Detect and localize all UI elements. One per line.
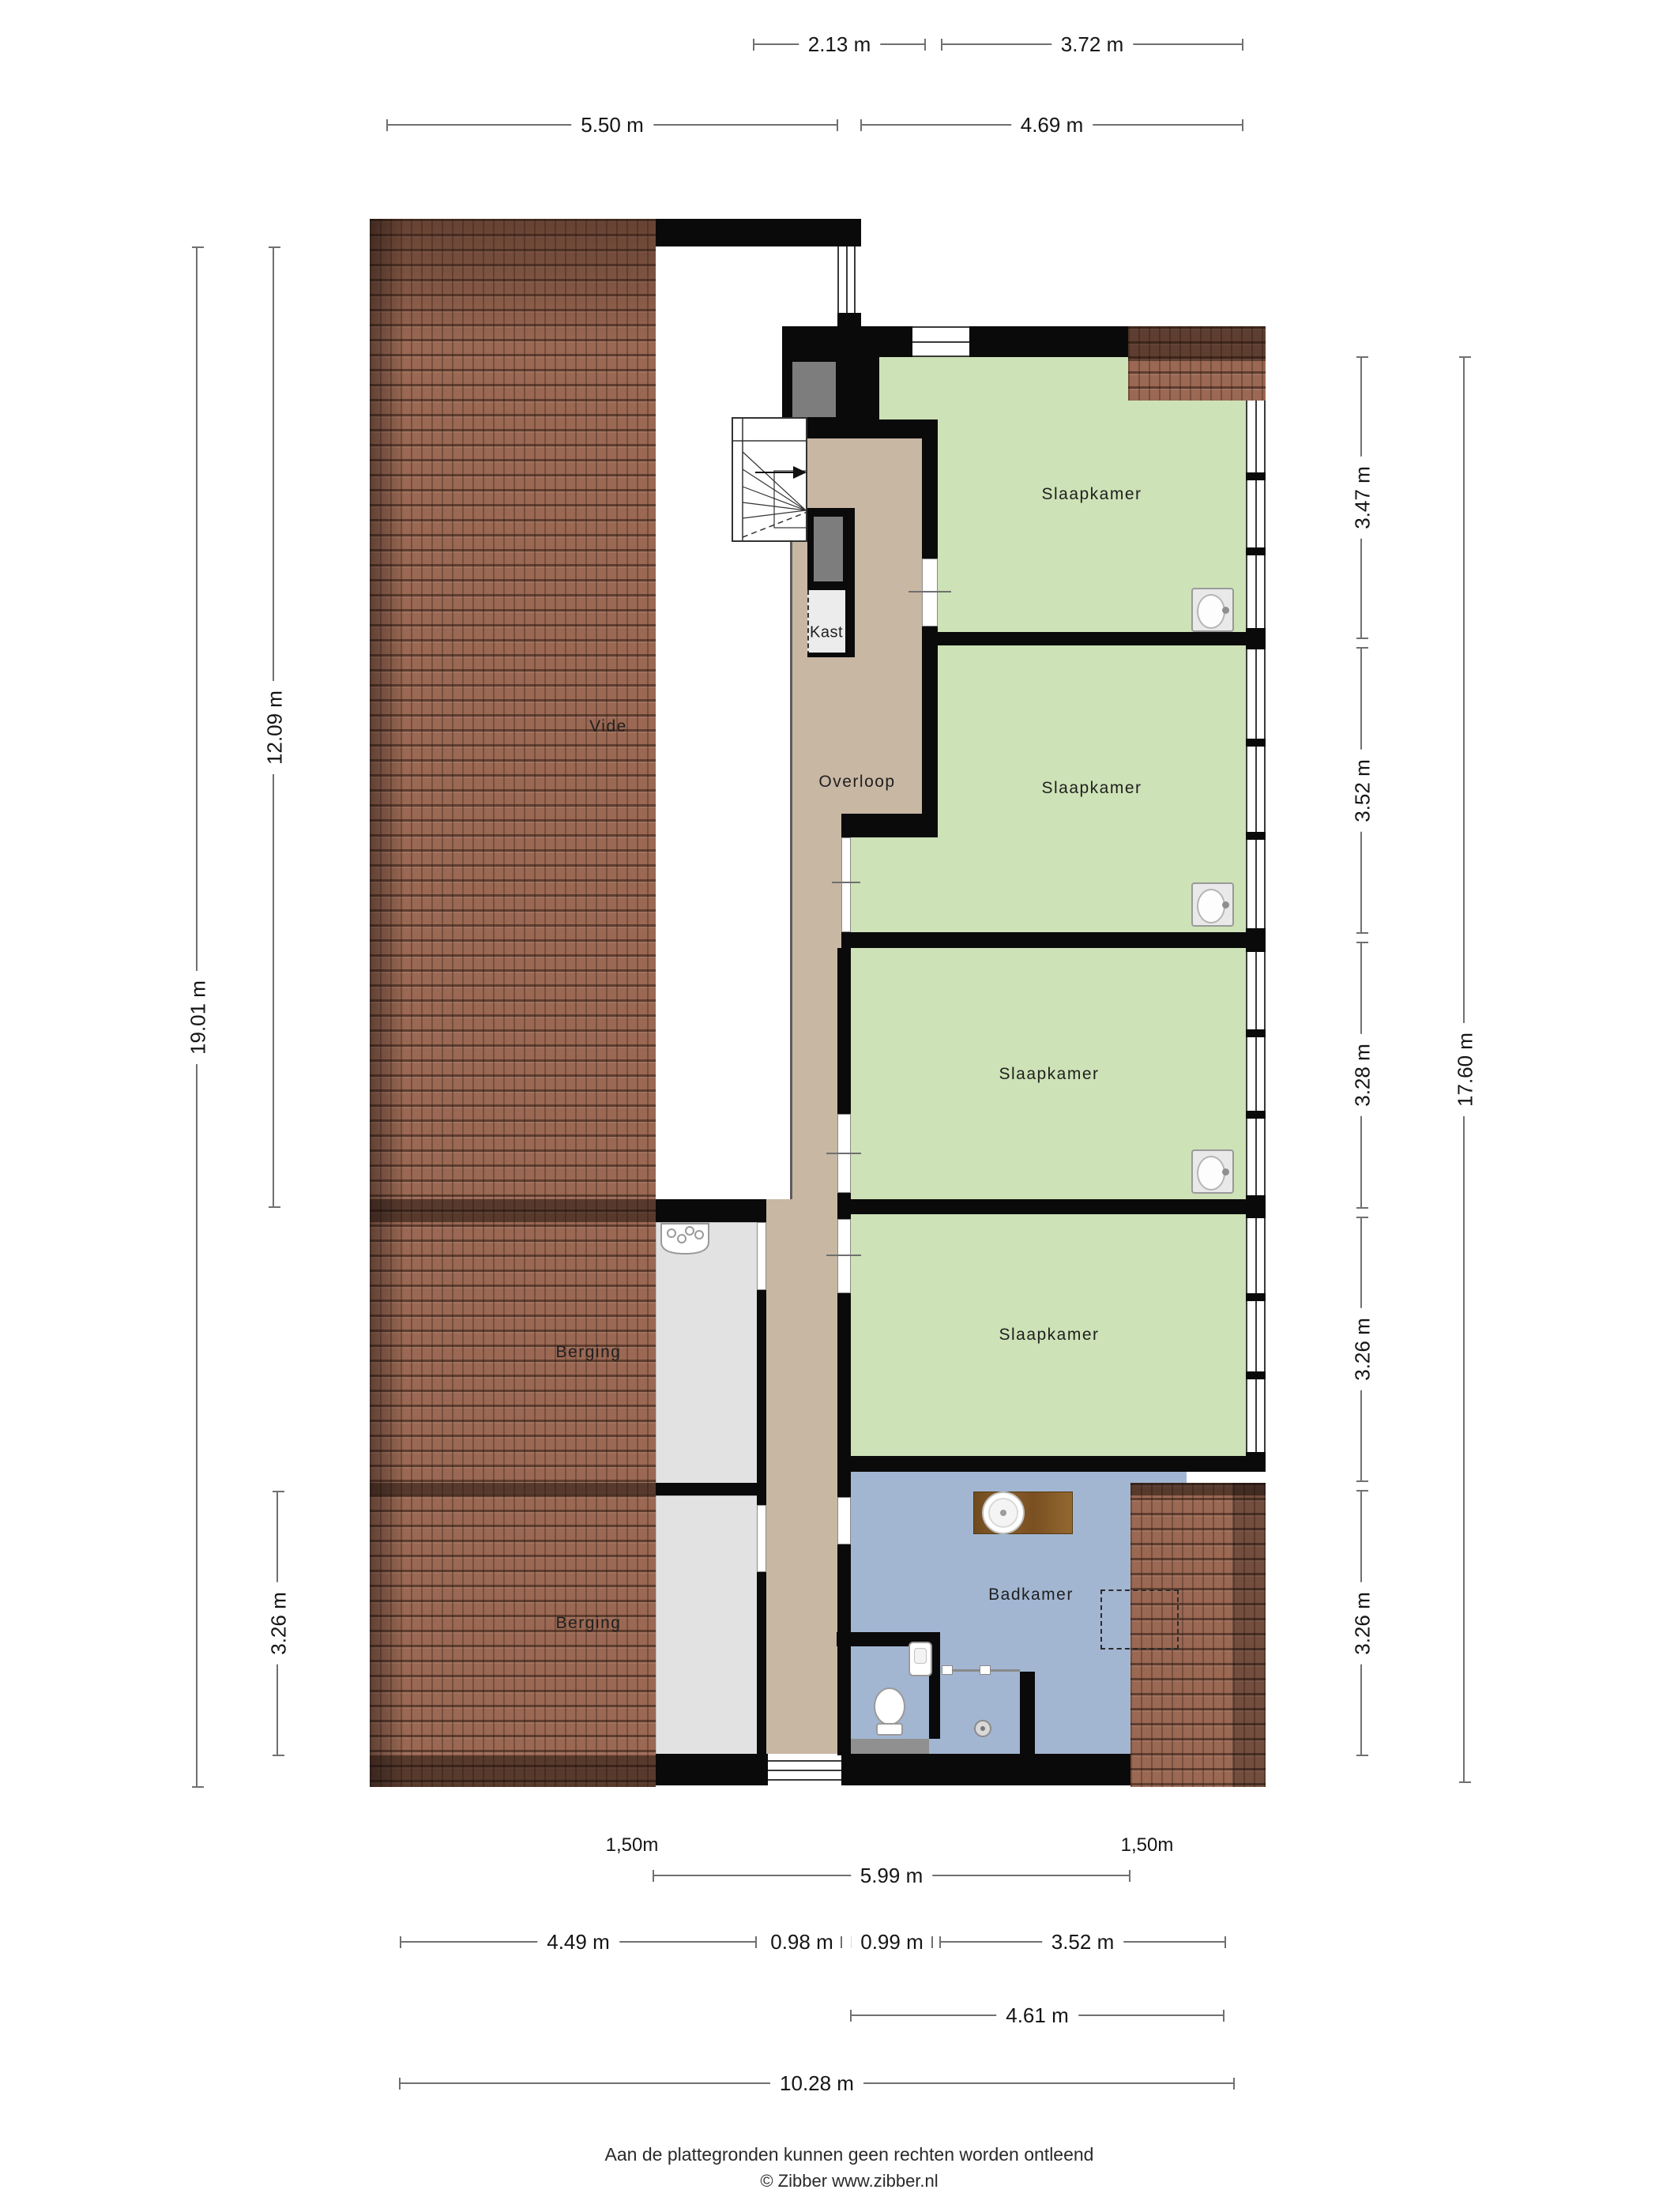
- dim-label: 3.26 m: [1351, 1308, 1375, 1390]
- headroom-label-right: 1,50m: [1121, 1834, 1174, 1856]
- landing-floor-mid: [792, 814, 841, 1199]
- room-label-vide: Vide: [589, 717, 627, 736]
- wall-east-cap-2: [1246, 928, 1266, 952]
- dim-label: 17.60 m: [1454, 1023, 1478, 1116]
- wall-bath-left-a: [837, 1472, 851, 1497]
- window-mullion: [1246, 1293, 1266, 1301]
- window-mullion: [1246, 1111, 1266, 1119]
- bedroom-4-door-swing: [826, 1255, 861, 1256]
- bedroom-1-door-swing: [908, 591, 951, 592]
- window-mullion: [1246, 472, 1266, 480]
- south-window: [768, 1760, 841, 1781]
- void-edge-line: [790, 542, 792, 1199]
- headroom-label-left: 1,50m: [606, 1834, 659, 1856]
- wall-divider-bed2-bed3: [841, 932, 1266, 948]
- dim-label: 2.13 m: [799, 32, 881, 57]
- footer-disclaimer: Aan de plattegronden kunnen geen rechten…: [605, 2144, 1094, 2165]
- storage-1-floor: [656, 1222, 758, 1484]
- wall-divider-bed4-bath: [837, 1456, 1266, 1472]
- dim-label: 3.72 m: [1051, 32, 1134, 57]
- dim-bottom-0-98: 0.98 m: [762, 1941, 841, 1943]
- dim-top-3-72: 3.72 m: [942, 43, 1243, 45]
- wall-storage-divider: [654, 1483, 766, 1495]
- dim-label: 4.49 m: [537, 1930, 619, 1954]
- dim-right-3-26-a: 3.26 m: [1360, 1217, 1362, 1481]
- wall-closet-right: [845, 508, 855, 656]
- dim-label: 0.98 m: [761, 1930, 843, 1954]
- bedroom-4-door: [837, 1219, 851, 1293]
- dim-left-3-26: 3.26 m: [276, 1492, 278, 1755]
- shower-area-outline: [1100, 1589, 1179, 1650]
- dim-bottom-10-28: 10.28 m: [400, 2082, 1234, 2084]
- dim-bottom-5-99: 5.99 m: [653, 1875, 1130, 1876]
- wall-shower-partition: [1020, 1672, 1035, 1755]
- shower-screen-cap: [980, 1665, 991, 1675]
- wall-south-right: [841, 1754, 1130, 1785]
- dim-left-12-09: 12.09 m: [273, 247, 274, 1207]
- wall-divider-bed1-bed2: [922, 632, 1266, 645]
- wall-bed1-left-upper: [863, 326, 879, 419]
- bedroom-1-door: [922, 559, 938, 626]
- room-label-badkamer: Badkamer: [988, 1586, 1074, 1604]
- wall-east-cap-1: [1246, 628, 1266, 649]
- room-label-slaapkamer-1: Slaapkamer: [1041, 485, 1142, 504]
- closet-floor: [807, 590, 847, 656]
- dim-bottom-4-61: 4.61 m: [851, 2014, 1224, 2016]
- room-label-slaapkamer-3: Slaapkamer: [999, 1065, 1099, 1084]
- wall-hall-left-a: [757, 1290, 766, 1505]
- dim-label: 12.09 m: [263, 681, 288, 774]
- dormer-window: [837, 246, 856, 313]
- toilet: [872, 1687, 907, 1736]
- dim-right-17-60: 17.60 m: [1463, 357, 1465, 1782]
- room-label-berging-2: Berging: [556, 1614, 622, 1633]
- landing-floor-lower: [766, 1199, 841, 1754]
- dim-bottom-4-49: 4.49 m: [401, 1941, 756, 1943]
- chimney-duct-1: [792, 362, 836, 417]
- window-mullion: [1246, 739, 1266, 747]
- dim-top-2-13: 2.13 m: [754, 43, 925, 45]
- dim-label: 3.26 m: [1351, 1582, 1375, 1665]
- wall-south-left: [654, 1754, 768, 1785]
- shower-head: [974, 1720, 991, 1737]
- bedroom-4-window: [1246, 1218, 1266, 1452]
- room-label-slaapkamer-4: Slaapkamer: [999, 1326, 1099, 1345]
- dim-label: 4.61 m: [996, 2003, 1078, 2028]
- wall-bed2-left: [922, 645, 938, 814]
- dim-right-3-26-b: 3.26 m: [1360, 1491, 1362, 1755]
- dim-label: 3.26 m: [267, 1582, 292, 1665]
- storage-2-door: [757, 1505, 766, 1572]
- dim-label: 3.52 m: [1351, 750, 1375, 832]
- dim-label: 0.99 m: [851, 1930, 933, 1954]
- wc-hand-basin: [908, 1642, 932, 1676]
- wall-closet-bottom: [807, 653, 855, 657]
- wall-east-cap-4: [1246, 1452, 1266, 1472]
- dim-top-4-69: 4.69 m: [861, 124, 1243, 126]
- wall-divider-bed3-bed4: [837, 1199, 1266, 1214]
- shower-screen-cap: [942, 1665, 953, 1675]
- window-mullion: [1246, 1371, 1266, 1379]
- wall-dormer-top: [653, 219, 861, 246]
- dim-label: 3.47 m: [1351, 457, 1375, 539]
- storage-sink: [660, 1223, 709, 1255]
- dim-label: 19.01 m: [186, 971, 211, 1064]
- bedroom-2-door: [841, 837, 851, 932]
- bedroom-1-sink: [1191, 588, 1234, 632]
- roof-top-right: [1128, 326, 1266, 401]
- bathroom-round-sink: [982, 1492, 1025, 1534]
- dim-right-3-47: 3.47 m: [1360, 357, 1362, 638]
- dim-label: 5.99 m: [851, 1864, 933, 1888]
- window-mullion: [1246, 547, 1266, 555]
- dim-label: 3.52 m: [1042, 1930, 1124, 1954]
- bedroom-2-floor-ext: [851, 837, 938, 932]
- wall-bed3-left-a: [837, 948, 851, 1114]
- window-mullion: [1246, 1029, 1266, 1037]
- wall-bath-left-b: [837, 1544, 851, 1755]
- chimney-duct-2: [814, 517, 843, 581]
- bedroom-2-door-swing: [832, 882, 860, 883]
- dim-top-5-50: 5.50 m: [387, 124, 837, 126]
- room-label-berging-1: Berging: [556, 1343, 622, 1362]
- roof-left: [370, 219, 656, 1787]
- dim-right-3-52: 3.52 m: [1360, 648, 1362, 933]
- toilet-threshold: [851, 1739, 929, 1755]
- dim-label: 3.28 m: [1351, 1034, 1375, 1116]
- wall-bed1-left-a: [922, 438, 938, 559]
- wall-bed4-left-b: [837, 1293, 851, 1456]
- room-label-slaapkamer-2: Slaapkamer: [1041, 779, 1142, 798]
- bathroom-door: [837, 1497, 851, 1544]
- dim-bottom-3-52: 3.52 m: [940, 1941, 1225, 1943]
- wall-east-cap-3: [1246, 1195, 1266, 1218]
- wall-north-right: [969, 326, 1128, 357]
- wall-bed3-left-b: [837, 1193, 851, 1199]
- wall-hall-left-b: [757, 1572, 766, 1755]
- wall-landing-jog: [841, 814, 938, 837]
- footer-copyright: © Zibber www.zibber.nl: [760, 2171, 938, 2191]
- room-label-kast: Kast: [810, 624, 843, 642]
- bedroom-2-sink: [1191, 882, 1234, 927]
- bedroom-3-sink: [1191, 1149, 1234, 1194]
- wall-north-left: [782, 326, 912, 357]
- wall-landing-top: [807, 419, 938, 438]
- storage-2-floor: [656, 1495, 758, 1755]
- dim-right-3-28: 3.28 m: [1360, 942, 1362, 1208]
- wall-storage-top: [654, 1199, 766, 1222]
- bedroom-3-window: [1246, 952, 1266, 1195]
- bedroom-1-window: [1246, 401, 1266, 628]
- bedroom-3-door-swing: [826, 1153, 861, 1154]
- dim-bottom-0-99: 0.99 m: [852, 1941, 932, 1943]
- dim-left-19-01: 19.01 m: [196, 247, 197, 1787]
- room-label-overloop: Overloop: [818, 773, 895, 792]
- window-mullion: [1246, 832, 1266, 840]
- dim-label: 10.28 m: [770, 2071, 863, 2096]
- dim-label: 4.69 m: [1011, 113, 1093, 137]
- north-window: [912, 326, 969, 357]
- dim-label: 5.50 m: [571, 113, 653, 137]
- storage-1-door: [757, 1222, 766, 1290]
- staircase: [732, 417, 807, 542]
- floorplan-canvas: Vide Overloop Kast Slaapkamer Slaapkamer…: [0, 0, 1659, 2212]
- bedroom-2-window: [1246, 649, 1266, 928]
